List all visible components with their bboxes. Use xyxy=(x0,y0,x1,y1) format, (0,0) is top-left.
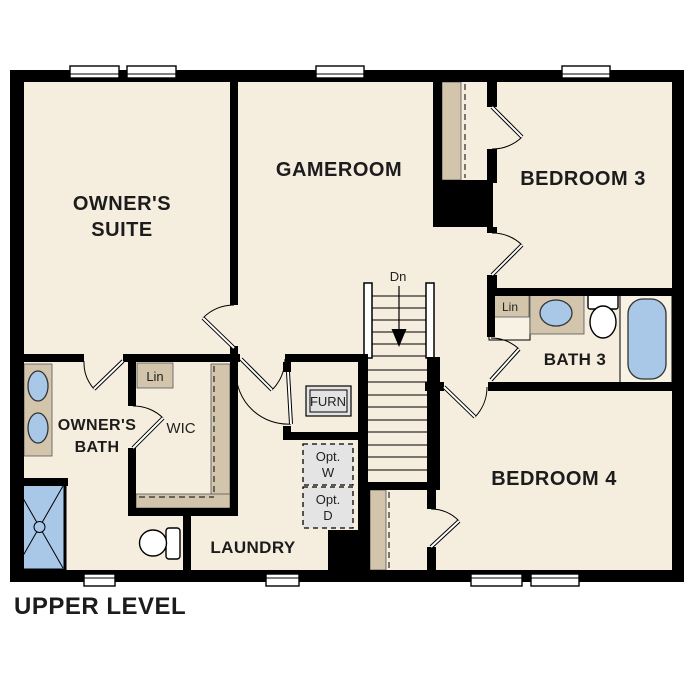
window xyxy=(471,574,522,586)
stair-rail-left xyxy=(364,283,372,358)
window xyxy=(70,66,119,78)
owners-toilet-bowl xyxy=(140,530,167,556)
owners-bath-sink-2 xyxy=(28,413,48,443)
bath3-toilet-bowl xyxy=(590,306,616,338)
furnace-closet-wall xyxy=(283,432,368,440)
bath3-top-wall xyxy=(495,288,672,296)
bath3-label: BATH 3 xyxy=(544,350,607,369)
wic-linen-label: Lin xyxy=(146,369,163,384)
bedroom3-closet-shelf xyxy=(442,82,461,180)
owners-bath-sink-1 xyxy=(28,371,48,401)
bath3-bedroom4-wall xyxy=(488,382,672,391)
shower-drain xyxy=(34,522,45,533)
owners-bath-label-line2: BATH xyxy=(75,439,120,456)
window xyxy=(562,66,610,78)
bath3-tub xyxy=(628,299,666,379)
owners-toilet-tank xyxy=(166,528,180,559)
floorplan-canvas: OWNER'S SUITE GAMEROOM BEDROOM 3 BEDROOM… xyxy=(0,0,687,687)
opt-washer-label-line2: W xyxy=(322,465,335,480)
wic-shelf-bottom xyxy=(136,494,230,508)
gameroom-label: GAMEROOM xyxy=(276,159,402,181)
chase-block-lower xyxy=(328,530,368,572)
owners-bath-label: OWNER'S xyxy=(58,417,137,434)
owners-suite-label: OWNER'S xyxy=(73,193,171,215)
window xyxy=(531,574,579,586)
opt-washer-label: Opt. xyxy=(316,449,341,464)
laundry-label: LAUNDRY xyxy=(210,538,296,557)
bedroom4-label: BEDROOM 4 xyxy=(491,468,617,490)
owners-suite-label-line2: SUITE xyxy=(91,219,152,241)
chase-block-upper xyxy=(433,180,493,227)
opt-dryer-label: Opt. xyxy=(316,492,341,507)
bath3-linen-label: Lin xyxy=(502,300,518,314)
window xyxy=(316,66,364,78)
opt-dryer-label-line2: D xyxy=(323,508,332,523)
wic-label: WIC xyxy=(166,420,195,437)
gameroom-right-wall xyxy=(433,82,442,180)
floorplan-page: OWNER'S SUITE GAMEROOM BEDROOM 3 BEDROOM… xyxy=(0,0,687,687)
window xyxy=(84,574,115,586)
bedroom4-closet-shelf xyxy=(370,490,386,570)
bedroom3-label: BEDROOM 3 xyxy=(520,168,646,190)
window xyxy=(127,66,176,78)
stair-rail-right xyxy=(426,283,434,358)
bath3-sink xyxy=(540,300,572,326)
window xyxy=(266,574,299,586)
furnace-label: FURN xyxy=(310,394,346,409)
stair-direction-label: Dn xyxy=(390,269,407,284)
owners-suite-right-wall xyxy=(230,82,238,305)
plan-title: UPPER LEVEL xyxy=(14,593,186,620)
